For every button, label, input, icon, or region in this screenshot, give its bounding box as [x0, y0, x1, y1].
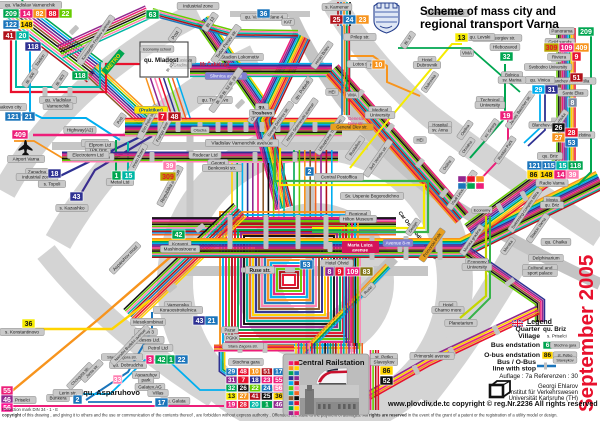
svg-text:29: 29 — [535, 87, 543, 94]
svg-text:9: 9 — [338, 269, 342, 276]
svg-text:27: 27 — [240, 393, 248, 400]
svg-text:O-bus endstation: O-bus endstation — [484, 352, 540, 359]
svg-text:148: 148 — [541, 172, 553, 179]
svg-text:Mashinostroene: Mashinostroene — [164, 247, 197, 252]
svg-text:10: 10 — [375, 62, 383, 69]
svg-text:109: 109 — [347, 269, 359, 276]
svg-text:Alsakovo city: Alsakovo city — [0, 105, 22, 110]
svg-text:86: 86 — [383, 368, 391, 375]
svg-text:Otocha: Otocha — [194, 127, 208, 132]
svg-text:118: 118 — [27, 44, 38, 51]
svg-text:42: 42 — [175, 232, 183, 239]
svg-text:7: 7 — [241, 377, 245, 384]
svg-text:sv. Anna: sv. Anna — [432, 128, 448, 133]
svg-text:118: 118 — [74, 73, 85, 80]
svg-text:26: 26 — [240, 385, 248, 392]
svg-text:Charno more: Charno more — [435, 308, 462, 313]
svg-text:Stadion Lokomotiv: Stadion Lokomotiv — [221, 55, 259, 60]
svg-text:55: 55 — [275, 377, 283, 384]
svg-text:park: park — [142, 378, 152, 383]
svg-text:25: 25 — [333, 17, 341, 24]
svg-text:24: 24 — [263, 385, 271, 392]
svg-text:qu. Briz: qu. Briz — [542, 154, 558, 159]
svg-text:qu. Briz: qu. Briz — [545, 203, 559, 208]
svg-text:Svobodno University: Svobodno University — [529, 65, 568, 70]
svg-text:18: 18 — [251, 377, 259, 384]
svg-text:Auflage : 7a Referenzen : 30: Auflage : 7a Referenzen : 30 — [499, 373, 578, 380]
svg-text:Benkovski str.: Benkovski str. — [208, 166, 236, 171]
svg-text:Central Railstation: Central Railstation — [297, 358, 364, 367]
svg-text:www.plovdiv.de.tc: www.plovdiv.de.tc — [387, 399, 450, 408]
svg-text:sv. Marina: sv. Marina — [502, 78, 522, 83]
svg-text:Ruse str.: Ruse str. — [249, 268, 271, 274]
svg-text:22: 22 — [251, 385, 259, 392]
svg-text:s. Topoli: s. Topoli — [44, 182, 61, 187]
svg-text:Troshevo: Troshevo — [252, 111, 273, 116]
svg-text:24: 24 — [346, 17, 354, 24]
svg-text:20: 20 — [251, 401, 259, 408]
svg-text:qu. Chaika: qu. Chaika — [545, 240, 567, 245]
svg-text:41: 41 — [251, 393, 259, 400]
svg-text:1: 1 — [115, 173, 119, 180]
svg-text:Airport Varna: Airport Varna — [13, 157, 40, 162]
svg-text:qu. Dobrudzha: qu. Dobrudzha — [113, 363, 144, 368]
svg-text:qu. Vinica: qu. Vinica — [530, 78, 551, 83]
svg-text:48: 48 — [240, 369, 248, 376]
svg-text:Legend: Legend — [527, 319, 552, 326]
svg-text:Planetarium: Planetarium — [449, 321, 474, 326]
svg-text:55: 55 — [3, 388, 11, 395]
svg-text:21: 21 — [208, 318, 216, 325]
svg-text:39: 39 — [569, 172, 577, 179]
svg-text:53: 53 — [303, 262, 311, 269]
svg-text:83: 83 — [363, 269, 371, 276]
svg-text:41: 41 — [6, 33, 14, 40]
svg-text:qu. Vladislav: qu. Vladislav — [45, 98, 72, 103]
svg-text:Mesokombinat: Mesokombinat — [133, 320, 164, 325]
svg-text:36: 36 — [275, 393, 283, 400]
svg-text:10: 10 — [251, 369, 259, 376]
svg-text:20: 20 — [19, 33, 27, 40]
svg-text:409: 409 — [576, 45, 588, 52]
svg-text:Petrol Ltd: Petrol Ltd — [148, 346, 168, 351]
svg-text:Vladislav Varnenchik avenue: Vladislav Varnenchik avenue — [211, 141, 273, 147]
svg-text:September 2005: September 2005 — [575, 255, 598, 412]
svg-text:25: 25 — [263, 393, 271, 400]
svg-text:PGKK: PGKK — [226, 336, 238, 341]
svg-text:Village: Village — [518, 333, 540, 340]
svg-text:18: 18 — [51, 171, 59, 178]
svg-text:Dlev str.: Dlev str. — [348, 121, 364, 126]
svg-text:51: 51 — [573, 75, 581, 82]
svg-text:148: 148 — [21, 22, 33, 29]
svg-text:42: 42 — [158, 357, 166, 364]
svg-text:Electroterm Ltd: Electroterm Ltd — [72, 153, 104, 158]
svg-text:22: 22 — [178, 357, 186, 364]
svg-text:6: 6 — [546, 342, 550, 349]
svg-text:Dubrovnik: Dubrovnik — [417, 63, 438, 68]
svg-text:36: 36 — [260, 11, 268, 18]
svg-text:Hotel Ohrid: Hotel Ohrid — [325, 261, 349, 266]
svg-text:s. Konstantinovo: s. Konstantinovo — [5, 330, 39, 335]
svg-text:s. Kazashko: s. Kazashko — [59, 206, 84, 211]
svg-text:Riviera: Riviera — [552, 55, 567, 60]
svg-text:46: 46 — [275, 401, 283, 408]
svg-text:7: 7 — [161, 114, 165, 121]
svg-text:13: 13 — [458, 35, 466, 42]
svg-text:14: 14 — [557, 172, 565, 179]
svg-text:19: 19 — [503, 113, 511, 120]
svg-text:409: 409 — [14, 132, 26, 139]
svg-text:HEI: HEI — [417, 138, 424, 143]
svg-text:Stochna gara: Stochna gara — [554, 343, 577, 347]
svg-text:Industrial zone: Industrial zone — [183, 4, 213, 9]
svg-text:Economy: Economy — [474, 207, 491, 212]
svg-text:88: 88 — [49, 11, 57, 18]
svg-text:1: 1 — [265, 401, 269, 408]
svg-text:qu. Levski: qu. Levski — [470, 35, 491, 40]
svg-text:Stara Zagora str.: Stara Zagora str. — [228, 343, 258, 348]
svg-text:Radio Varna: Radio Varna — [539, 181, 565, 186]
svg-text:line with stop: line with stop — [493, 366, 536, 373]
svg-text:309: 309 — [546, 45, 558, 52]
svg-text:Slaveykov: Slaveykov — [374, 360, 396, 365]
svg-text:28: 28 — [568, 130, 576, 137]
svg-text:17: 17 — [275, 369, 283, 376]
svg-text:VMA: VMA — [462, 51, 473, 56]
svg-text:qu.: qu. — [259, 105, 266, 110]
svg-text:Hlebozavod: Hlebozavod — [493, 45, 518, 50]
svg-text:Highway(A2): Highway(A2) — [67, 128, 94, 133]
svg-text:15: 15 — [559, 163, 567, 170]
svg-text:copyright of this drawing , an: copyright of this drawing , and giving i… — [2, 413, 558, 418]
svg-text:27: 27 — [555, 135, 563, 142]
svg-text:University: University — [370, 113, 391, 118]
svg-text:Sante Elias: Sante Elias — [562, 91, 583, 96]
svg-text:82: 82 — [36, 11, 44, 18]
svg-text:Metal Ltd: Metal Ltd — [111, 180, 130, 185]
svg-text:Protection mark DIN 34 - 1 - E: Protection mark DIN 34 - 1 - E — [2, 407, 58, 412]
svg-text:43: 43 — [73, 194, 81, 201]
svg-text:Delphinarium: Delphinarium — [532, 256, 559, 261]
svg-text:209: 209 — [5, 11, 17, 18]
svg-text:53: 53 — [568, 140, 576, 147]
svg-text:sport palace: sport palace — [527, 271, 552, 276]
svg-text:copyright © reg.Nr.2236 All ri: copyright © reg.Nr.2236 All rights reser… — [452, 399, 598, 408]
svg-text:22: 22 — [62, 11, 70, 18]
svg-text:86: 86 — [544, 352, 552, 359]
svg-text:9: 9 — [575, 54, 579, 61]
svg-text:Quarter: Quarter — [515, 326, 540, 333]
svg-text:109: 109 — [561, 45, 573, 52]
svg-text:31: 31 — [228, 377, 236, 384]
svg-text:21: 21 — [25, 114, 33, 121]
svg-text:31: 31 — [548, 87, 556, 94]
svg-text:56: 56 — [275, 385, 283, 392]
svg-text:s. Kamenar: s. Kamenar — [325, 5, 349, 10]
svg-text:HEI: HEI — [329, 90, 336, 95]
svg-text:1: 1 — [169, 357, 173, 364]
svg-text:Mr.Čakaloga: Mr.Čakaloga — [200, 61, 230, 68]
svg-text:Elprom Ltd: Elprom Ltd — [89, 143, 112, 148]
svg-text:36: 36 — [25, 321, 33, 328]
svg-text:Villas: Villas — [153, 391, 165, 396]
svg-text:19: 19 — [228, 401, 236, 408]
svg-text:2: 2 — [76, 397, 80, 404]
svg-text:29: 29 — [228, 369, 236, 376]
svg-text:Primorski avenue: Primorski avenue — [414, 354, 450, 359]
svg-text:regional transport Varna: regional transport Varna — [420, 17, 559, 31]
svg-text:3: 3 — [148, 357, 152, 364]
svg-text:Galatev.AG: Galatev.AG — [138, 385, 162, 390]
svg-text:309: 309 — [162, 174, 174, 181]
svg-text:KAT: KAT — [284, 20, 292, 25]
svg-text:23: 23 — [263, 377, 271, 384]
svg-text:Koraoostroitelnica: Koraoostroitelnica — [160, 308, 197, 313]
svg-text:Central Postoffica: Central Postoffica — [321, 175, 358, 180]
svg-text:avenue: avenue — [352, 248, 368, 253]
svg-text:Hilton Museum: Hilton Museum — [343, 217, 374, 222]
svg-text:Economy school: Economy school — [143, 47, 171, 51]
svg-text:qu. Asparuhovo: qu. Asparuhovo — [83, 388, 140, 397]
svg-text:39: 39 — [166, 163, 174, 170]
svg-text:Bus endstation: Bus endstation — [491, 342, 540, 349]
svg-text:13: 13 — [228, 393, 236, 400]
svg-text:17: 17 — [158, 400, 166, 407]
svg-text:52: 52 — [383, 378, 391, 385]
svg-text:2: 2 — [308, 169, 312, 176]
svg-text:qu. Vladislav Varnenchik: qu. Vladislav Varnenchik — [5, 3, 56, 8]
svg-text:51: 51 — [263, 369, 271, 376]
svg-text:26: 26 — [555, 125, 563, 132]
svg-text:28: 28 — [240, 401, 248, 408]
svg-text:121: 121 — [7, 114, 19, 121]
svg-text:Prilep str.: Prilep str. — [350, 35, 369, 40]
svg-text:Slaveykov: Slaveykov — [556, 358, 573, 362]
svg-text:8: 8 — [328, 269, 332, 276]
svg-text:qu. Briz: qu. Briz — [543, 326, 566, 333]
svg-text:Varnenchik: Varnenchik — [47, 104, 70, 109]
svg-text:Rodecar Ltd: Rodecar Ltd — [192, 153, 217, 158]
svg-text:University: University — [480, 103, 501, 108]
svg-text:118: 118 — [570, 163, 581, 170]
svg-text:Avenue 8-m: Avenue 8-m — [386, 241, 411, 246]
svg-text:115: 115 — [543, 163, 554, 170]
svg-text:209: 209 — [580, 29, 592, 36]
svg-text:14: 14 — [23, 11, 31, 18]
svg-text:Stochna gara: Stochna gara — [232, 360, 260, 365]
svg-text:Pazar: Pazar — [225, 328, 237, 333]
svg-text:15: 15 — [125, 173, 133, 180]
svg-text:33: 33 — [114, 377, 122, 384]
svg-text:23: 23 — [359, 17, 367, 24]
svg-text:121: 121 — [529, 163, 541, 170]
svg-text:122: 122 — [5, 22, 17, 29]
svg-text:32: 32 — [503, 54, 511, 61]
svg-text:48: 48 — [171, 114, 179, 121]
svg-text:VMA: VMA — [347, 93, 356, 98]
svg-text:32: 32 — [228, 385, 236, 392]
svg-text:63: 63 — [149, 12, 157, 19]
svg-text:Scheme of mass city and: Scheme of mass city and — [420, 4, 556, 18]
svg-text:8: 8 — [571, 100, 575, 107]
svg-text:86: 86 — [530, 172, 538, 179]
svg-text:University: University — [467, 265, 488, 270]
svg-text:Sv. Uspenie Bogorodichno: Sv. Uspenie Bogorodichno — [345, 194, 399, 199]
svg-text:s. Priselci: s. Priselci — [547, 334, 567, 339]
svg-text:43: 43 — [196, 318, 204, 325]
